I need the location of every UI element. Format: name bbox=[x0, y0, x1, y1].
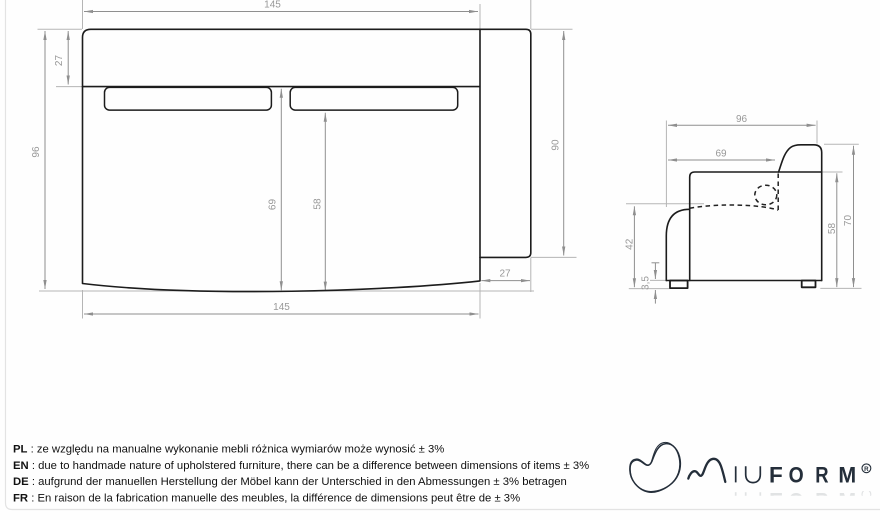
svg-text:O: O bbox=[789, 463, 804, 488]
svg-text:27: 27 bbox=[499, 269, 511, 280]
svg-text:145: 145 bbox=[264, 0, 281, 10]
svg-text:58: 58 bbox=[827, 223, 838, 235]
svg-text:96: 96 bbox=[736, 114, 748, 125]
svg-text:F: F bbox=[769, 462, 783, 487]
svg-text:R: R bbox=[864, 466, 869, 473]
svg-text:69: 69 bbox=[715, 149, 727, 160]
svg-text:58: 58 bbox=[313, 198, 324, 210]
svg-text:27: 27 bbox=[54, 55, 65, 67]
svg-text:FR : En raison de la fabricati: FR : En raison de la fabrication manuell… bbox=[13, 493, 520, 505]
svg-text:145: 145 bbox=[273, 302, 290, 313]
svg-text:EN : due to handmade nature of: EN : due to handmade nature of upholster… bbox=[13, 460, 589, 472]
svg-text:96: 96 bbox=[31, 146, 42, 158]
svg-text:DE : aufgrund der manuellen He: DE : aufgrund der manuellen Herstellung … bbox=[13, 476, 567, 488]
svg-text:M: M bbox=[838, 462, 856, 488]
svg-text:3,5: 3,5 bbox=[641, 276, 652, 290]
svg-text:69: 69 bbox=[268, 199, 279, 211]
svg-text:42: 42 bbox=[625, 238, 636, 250]
svg-text:90: 90 bbox=[551, 139, 562, 151]
svg-text:R: R bbox=[815, 463, 828, 488]
svg-text:PL : ze względu na manualne wy: PL : ze względu na manualne wykonanie me… bbox=[13, 444, 444, 456]
svg-text:70: 70 bbox=[843, 215, 854, 227]
